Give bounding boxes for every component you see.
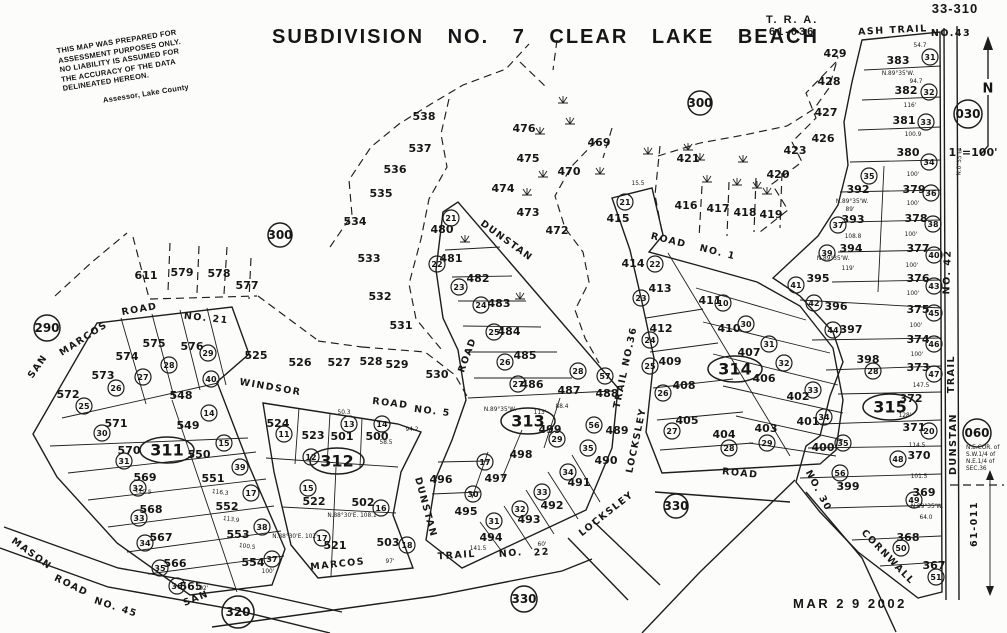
road-label: ROAD [650,231,688,250]
road-label: TRAIL [946,355,957,393]
lot-division-line [152,314,174,397]
dimension-label: 100' [910,323,923,329]
lot-number: 525 [245,349,268,362]
lot-number: 382 [895,84,918,97]
lot-number: 393 [842,213,865,226]
lot-number: 394 [840,242,863,255]
assessor-number: 25 [644,362,656,371]
lot-number: 494 [480,531,503,544]
assessor-number: 38 [256,523,268,532]
lot-number: 496 [430,473,453,486]
dimension-label: 141.5 [470,546,487,552]
lot-number: 485 [514,349,537,362]
marsh-symbol-icon [752,181,762,188]
map-page-number: 313 [511,412,544,431]
lot-number: 549 [177,419,200,432]
block-road-outline [568,538,628,600]
lot-number: 378 [905,212,928,225]
assessor-number: 34 [923,158,935,167]
lot-number: 419 [760,208,783,221]
assessor-number: 17 [479,458,490,467]
dimension-label: N.89°35'W. [911,504,943,510]
lot-number: 579 [171,266,194,279]
lot-number: 572 [57,388,80,401]
lot-number: 370 [908,449,931,462]
lot-number: 381 [893,114,916,127]
assessor-number: 33 [807,386,818,395]
lot-number: 500 [366,430,389,443]
assessor-number: 28 [867,367,879,376]
dimension-label: 100' [907,291,920,297]
lot-number: 530 [426,368,449,381]
assessor-number: 22 [431,260,442,269]
marsh-symbol-icon [683,143,693,150]
lot-number: 490 [595,454,618,467]
lot-number: 383 [887,54,910,67]
parcel-map-canvas: SANMARCOSROADNO. 21WINDSORROADNO. 5DUNST… [0,0,1007,633]
subdivision-boundary-dashed [133,237,149,298]
lot-number: 577 [236,279,259,292]
assessor-number: 31 [488,517,500,526]
dimension-label: 100' [907,201,920,207]
assessor-number: 41 [790,281,802,290]
lot-number: 535 [370,187,393,200]
assessor-number: 48 [892,455,904,464]
road-label: NO. 21 [183,311,229,327]
assessor-number: 39 [821,249,833,258]
dimension-label: 100' [911,352,924,358]
road-label: NO. [499,547,524,560]
assessor-number: 25 [488,328,500,337]
assessor-number: 47 [928,370,939,379]
road-label: 22 [533,546,550,558]
assessor-number: 17 [245,489,256,498]
marsh-symbol-icon [643,147,653,154]
dimension-label: 113.9 [222,516,240,524]
assessor-number: 40 [928,251,940,260]
lot-division-line [295,408,299,464]
lot-number: 489 [606,424,629,437]
assessor-number: 35 [582,444,594,453]
assessor-number: 56 [588,421,600,430]
corner-note-line: S.W.1/4 of [966,452,996,458]
assessor-number: 26 [657,389,669,398]
lot-number: 368 [897,531,920,544]
lot-number: 482 [467,272,490,285]
assessor-number: 37 [266,555,277,564]
lot-number: 379 [903,183,926,196]
dimension-label: 100' [906,263,919,269]
road-label: MARCOS [310,556,366,573]
adjacent-page-number: 300 [267,228,292,242]
assessor-number: 25 [78,402,90,411]
lot-division-line [468,391,612,398]
assessor-number: 33 [920,118,931,127]
lot-number: 428 [818,75,841,88]
road-label: MARCOS [58,319,110,358]
assessor-number: 33 [536,488,547,497]
lot-number: 552 [216,500,239,513]
dimension-label: 97' [386,559,395,565]
assessor-number: 46 [928,340,940,349]
lot-number: 569 [134,471,157,484]
assessor-number: 30 [467,490,479,499]
assessor-number: 35 [154,564,166,573]
subdivision-boundary-dashed [520,62,545,86]
assessor-number: 30 [96,429,108,438]
assessor-number: 33 [133,514,144,523]
block-road-outline [806,492,896,632]
assessor-number: 56 [834,469,846,478]
lot-number: 578 [208,267,231,280]
lot-number: 503 [377,536,400,549]
lot-number: 476 [513,122,536,135]
assessor-number: 42 [808,299,819,308]
road-label: SAN [26,352,50,380]
assessor-number: 35 [837,439,849,448]
lot-number: 529 [386,358,409,371]
dimension-label: N.89°35'W. [882,71,914,77]
marsh-symbol-icon [732,178,742,185]
lot-number: 402 [787,390,810,403]
lot-number: 470 [558,165,581,178]
map-page-number: 315 [873,398,906,417]
dimension-label: 100' [905,232,918,238]
road-label: DUNSTAN [948,413,959,475]
assessor-number: 27 [137,373,148,382]
lot-number: 414 [622,257,645,270]
north-arrow-icon [981,48,988,154]
assessor-number: 36 [171,582,183,591]
assessor-number: 29 [551,435,563,444]
north-label: N [983,82,994,97]
lot-number: 400 [812,441,835,454]
lot-number: 420 [767,168,790,181]
assessor-number: 27 [512,380,523,389]
assessor-number: 34 [562,468,574,477]
road-label: 61-011 [969,501,980,547]
north-arrow-head [983,36,993,50]
lot-division-line [360,418,362,468]
lot-number: 574 [116,350,139,363]
assessor-number: 28 [723,444,735,453]
road-label: NO. 5 [413,404,451,419]
marsh-symbol-icon [762,187,772,194]
assessor-number: 18 [401,541,413,550]
lot-number: 573 [92,369,115,382]
adjacent-page-number: 030 [955,107,980,121]
dimension-label: 100.9 [905,132,922,138]
lot-number: 426 [812,132,835,145]
assessor-number: 29 [202,349,214,358]
corner-note-line: N.E.COR. of [966,445,1000,451]
corner-note-line: SEC.36 [966,466,987,472]
assessor-number: 21 [445,214,457,223]
marsh-symbol-icon [565,117,575,124]
assessor-number: 31 [118,457,130,466]
assessor-number: 44 [827,326,839,335]
lot-number: 480 [431,223,454,236]
assessor-number: 36 [925,189,937,198]
marsh-symbol-icon [738,155,748,162]
lot-number: 487 [558,384,581,397]
dimension-label: 101.5 [911,474,928,480]
lot-number: 536 [384,163,407,176]
subdivision-boundary-dashed [655,146,662,232]
assessor-number: 34 [139,539,151,548]
lot-number: 395 [807,272,830,285]
road-label: WINDSOR [239,377,303,399]
assessor-number: 28 [572,367,584,376]
road-label: LOCKSLEY [577,489,636,539]
lot-number: 408 [673,379,696,392]
lot-number: 413 [649,282,672,295]
assessor-number: 23 [635,294,646,303]
road-label: NO. 45 [93,595,139,619]
lot-number: 405 [676,414,699,427]
adjacent-page-number: 320 [225,605,250,619]
lot-number: 493 [518,513,541,526]
subdivision-boundary-dashed [553,40,557,70]
marsh-symbol-icon [595,167,605,174]
lot-number: 399 [837,480,860,493]
assessor-number: 37 [832,221,843,230]
lot-division-line [445,247,500,250]
dimension-label: 15.5 [632,181,645,187]
lot-division-line [657,412,743,420]
adjacent-page-number: 300 [687,96,712,110]
lot-number: 421 [677,152,700,165]
assessor-number: 13 [343,420,354,429]
lot-number: 502 [352,496,375,509]
assessor-number: 34 [818,413,830,422]
road-label: ROAD [52,573,90,599]
dimension-label: 116' [904,103,917,109]
assessor-number: 15 [302,484,314,493]
lot-number: 495 [455,505,478,518]
lot-number: 492 [541,499,564,512]
dimension-label: 147.5 [913,383,930,389]
marsh-symbol-icon [460,235,470,242]
adjacent-page-number: 330 [663,499,688,513]
assessor-number: 57 [599,372,610,381]
assessor-number: 11 [278,430,290,439]
marsh-symbol-icon [538,170,548,177]
assessor-number: 24 [475,301,487,310]
dimension-label: 50.3 [338,410,351,416]
marsh-symbol-icon [515,292,525,299]
lot-number: 537 [409,142,432,155]
lot-number: 406 [753,372,776,385]
assessor-number: 26 [110,384,122,393]
dimension-label: 60' [538,542,547,548]
lot-number: 534 [344,215,367,228]
corner-note-line: N.E.1/4 of [966,459,995,465]
subdivision-boundary-dashed [699,186,702,238]
map-page-number: 311 [150,441,183,460]
assessor-number: 16 [375,504,387,513]
dimension-label: 119' [842,266,855,272]
scale-label: 1"=100' [949,146,998,159]
lot-number: 475 [517,152,540,165]
assessor-number: 23 [453,283,464,292]
dimension-label: 100' [907,172,920,178]
dimension-label: 64.0 [920,515,933,521]
assessor-number: 26 [499,358,511,367]
dimension-label: 100' [262,569,275,575]
assessor-number: 22 [649,260,660,269]
assessor-number: 39 [234,463,246,472]
road-label: ASH TRAIL [858,23,928,38]
assessor-number: 35 [863,172,875,181]
road-label: LOCKSLEY [624,407,649,474]
lot-number: 538 [413,110,436,123]
lot-number: 532 [369,290,392,303]
lot-division-line [660,443,753,450]
dimension-label: 116.3 [211,489,229,497]
assessor-map-sheet: SUBDIVISION NO. 7 CLEAR LAKE BEACH 33-31… [0,0,1007,633]
lot-division-line [62,383,218,418]
assessor-number: 20 [923,427,935,436]
road-label: NO. 1 [698,243,736,263]
subdivision-boundary-dashed [258,296,316,339]
assessor-number: 40 [205,375,217,384]
lot-number: 474 [492,182,515,195]
lot-number: 483 [488,297,511,310]
dimension-label: 88.4 [556,404,569,410]
dimension-label: 94.2 [406,427,419,433]
assessor-number: 45 [928,309,940,318]
assessor-number: 32 [923,88,934,97]
assessor-number: 43 [928,282,939,291]
lot-number: 550 [188,448,211,461]
dimension-label: N.88°30'E. 102' [272,534,318,540]
adjacent-page-number: 330 [511,592,536,606]
assessor-number: 31 [924,53,936,62]
assessor-number: 50 [895,544,907,553]
lot-number: 397 [840,323,863,336]
assessor-number: 17 [316,534,327,543]
subdivision-boundary-dashed [55,233,127,296]
assessor-number: 32 [132,484,143,493]
lot-number: 404 [713,428,736,441]
lot-number: 416 [675,199,698,212]
adjacent-page-number: 060 [964,426,989,440]
marsh-symbol-icon [558,96,568,103]
lot-number: 522 [303,495,326,508]
assessor-number: 32 [514,505,525,514]
lot-number: 417 [707,202,730,215]
lot-number: 367 [923,559,946,572]
assessor-number: 14 [203,409,215,418]
lot-division-line [878,166,884,292]
subdivision-boundary-dashed [150,296,257,299]
lot-number: 528 [360,355,383,368]
assessor-number: 27 [666,427,677,436]
lot-number: 575 [143,337,166,350]
lot-number: 473 [517,206,540,219]
lot-number: 554 [242,556,265,569]
map-page-number: 312 [320,452,353,471]
lot-number: 488 [596,387,619,400]
lot-number: 526 [289,356,312,369]
lot-number: 380 [897,146,920,159]
subdivision-boundary-dashed [197,246,199,293]
adjacent-page-number: 290 [34,321,59,335]
assessor-number: 30 [740,320,752,329]
assessor-number: 10 [717,299,729,308]
assessor-number: 32 [778,359,789,368]
assessor-number: 31 [763,340,775,349]
lot-number: 551 [202,472,225,485]
lot-number: 553 [227,528,250,541]
dimension-label: N.88°30'E. 108.1 [327,513,377,519]
lot-number: 427 [815,106,838,119]
subdivision-boundary-dashed [318,341,362,347]
road-label: NO. 42 [941,249,954,294]
block-road-outline [944,28,946,600]
lot-number: 548 [170,389,193,402]
assessor-number: 29 [761,439,773,448]
lot-division-line [646,309,703,318]
lot-number: 531 [390,319,413,332]
lot-number: 527 [328,356,351,369]
dimension-label: 108.8 [845,234,862,240]
assessor-number: 14 [376,420,388,429]
assessor-number: 38 [927,220,939,229]
lot-number: 407 [738,346,761,359]
road-label: ROAD [456,336,479,374]
lot-number: 469 [588,136,611,149]
assessor-number: 24 [644,336,656,345]
lot-number: 497 [485,472,508,485]
lot-number: 491 [568,476,591,489]
lot-number: 409 [659,355,682,368]
lot-number: 418 [734,206,757,219]
lot-number: 403 [755,422,778,435]
assessor-number: 49 [908,496,920,505]
lot-number: 429 [824,47,847,60]
lot-number: 410 [718,322,741,335]
lot-division-line [88,479,266,500]
assessor-number: 15 [218,439,230,448]
lot-number: 498 [510,448,533,461]
dimension-label: N.89°35'W. [836,199,868,205]
dimension-label: 100.5 [238,543,256,551]
marsh-symbol-icon [535,127,545,134]
dimension-label: 54.7 [914,43,927,49]
assessor-number: 51 [930,573,942,582]
lot-number: 533 [358,252,381,265]
marsh-symbol-icon [702,175,712,182]
lot-number: 472 [546,224,569,237]
lot-number: 523 [302,429,325,442]
lot-number: 396 [825,300,848,313]
map-page-number: 314 [718,360,751,379]
road-label: DUNSTAN [478,218,535,263]
assessor-number: 28 [163,361,175,370]
assessor-number: 21 [619,198,631,207]
road-label: ROAD [372,396,409,411]
lot-number: 392 [847,183,870,196]
block-road-outline [592,520,660,585]
lot-number: 423 [784,144,807,157]
lot-number: 415 [607,212,630,225]
road-label: NO.43 [931,28,971,39]
marsh-symbol-icon [522,188,532,195]
lot-number: 611 [135,269,158,282]
lot-division-line [650,343,718,352]
